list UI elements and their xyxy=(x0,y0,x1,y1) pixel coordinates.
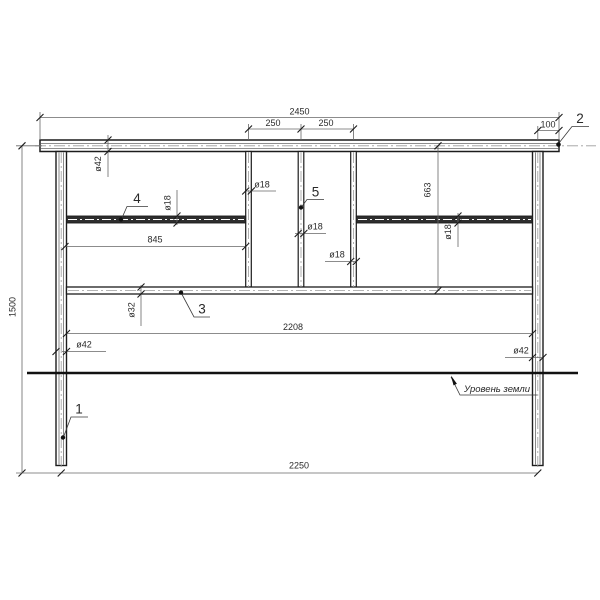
callout-text-vert3-dia: ø18 xyxy=(329,250,345,260)
vertical-bar-centerlines xyxy=(249,152,354,287)
dim-text-overall-width: 2450 xyxy=(289,107,309,117)
leader-dot-item3 xyxy=(179,290,183,294)
label-item3-mid-rail: 3 xyxy=(198,302,206,317)
dim-text-post-spacing: 2250 xyxy=(289,461,309,471)
label-item1-post: 1 xyxy=(75,402,83,417)
leader-item2 xyxy=(559,127,589,144)
technical-drawing: 2450 250 250 100 1500 663 845 2208 2250 xyxy=(0,0,600,600)
drawing-canvas: 2450 250 250 100 1500 663 845 2208 2250 xyxy=(0,0,600,600)
leader-dot-item1 xyxy=(61,435,65,439)
label-item5-center-bar: 5 xyxy=(312,185,320,200)
dim-text-right-segment: 250 xyxy=(318,118,333,128)
dim-text-inner-span: 2208 xyxy=(283,322,303,332)
label-item2-top-rail: 2 xyxy=(576,111,584,126)
dim-text-total-height: 1500 xyxy=(8,297,18,317)
dim-text-upper-panel-height: 663 xyxy=(423,182,433,197)
callout-text-rail-dia: ø42 xyxy=(93,156,103,172)
dim-text-left-segment: 250 xyxy=(265,118,280,128)
callout-text-left-bar-dia: ø18 xyxy=(163,195,173,211)
leader-dot-item5 xyxy=(299,205,303,209)
leader-dot-item4 xyxy=(119,217,123,221)
callout-text-right-bar-dia: ø18 xyxy=(443,224,453,240)
label-item4-left-bar: 4 xyxy=(133,191,141,206)
ground-level-note: Уровень земли xyxy=(451,376,537,396)
callout-text-vert1-dia: ø18 xyxy=(254,180,270,190)
callout-text-right-post-dia: ø42 xyxy=(513,346,529,356)
callout-text-vert2-dia: ø18 xyxy=(307,222,323,232)
ground-note-arrowhead xyxy=(451,376,457,386)
callout-text-left-post-dia: ø42 xyxy=(76,340,92,350)
callout-text-mid-rail-dia: ø32 xyxy=(127,302,137,318)
dim-text-overhang: 100 xyxy=(540,120,555,130)
leader-dot-item2 xyxy=(556,142,561,147)
ground-note-text: Уровень земли xyxy=(463,384,531,395)
dim-text-left-bar-length: 845 xyxy=(147,235,162,245)
leader-item5 xyxy=(302,200,325,208)
